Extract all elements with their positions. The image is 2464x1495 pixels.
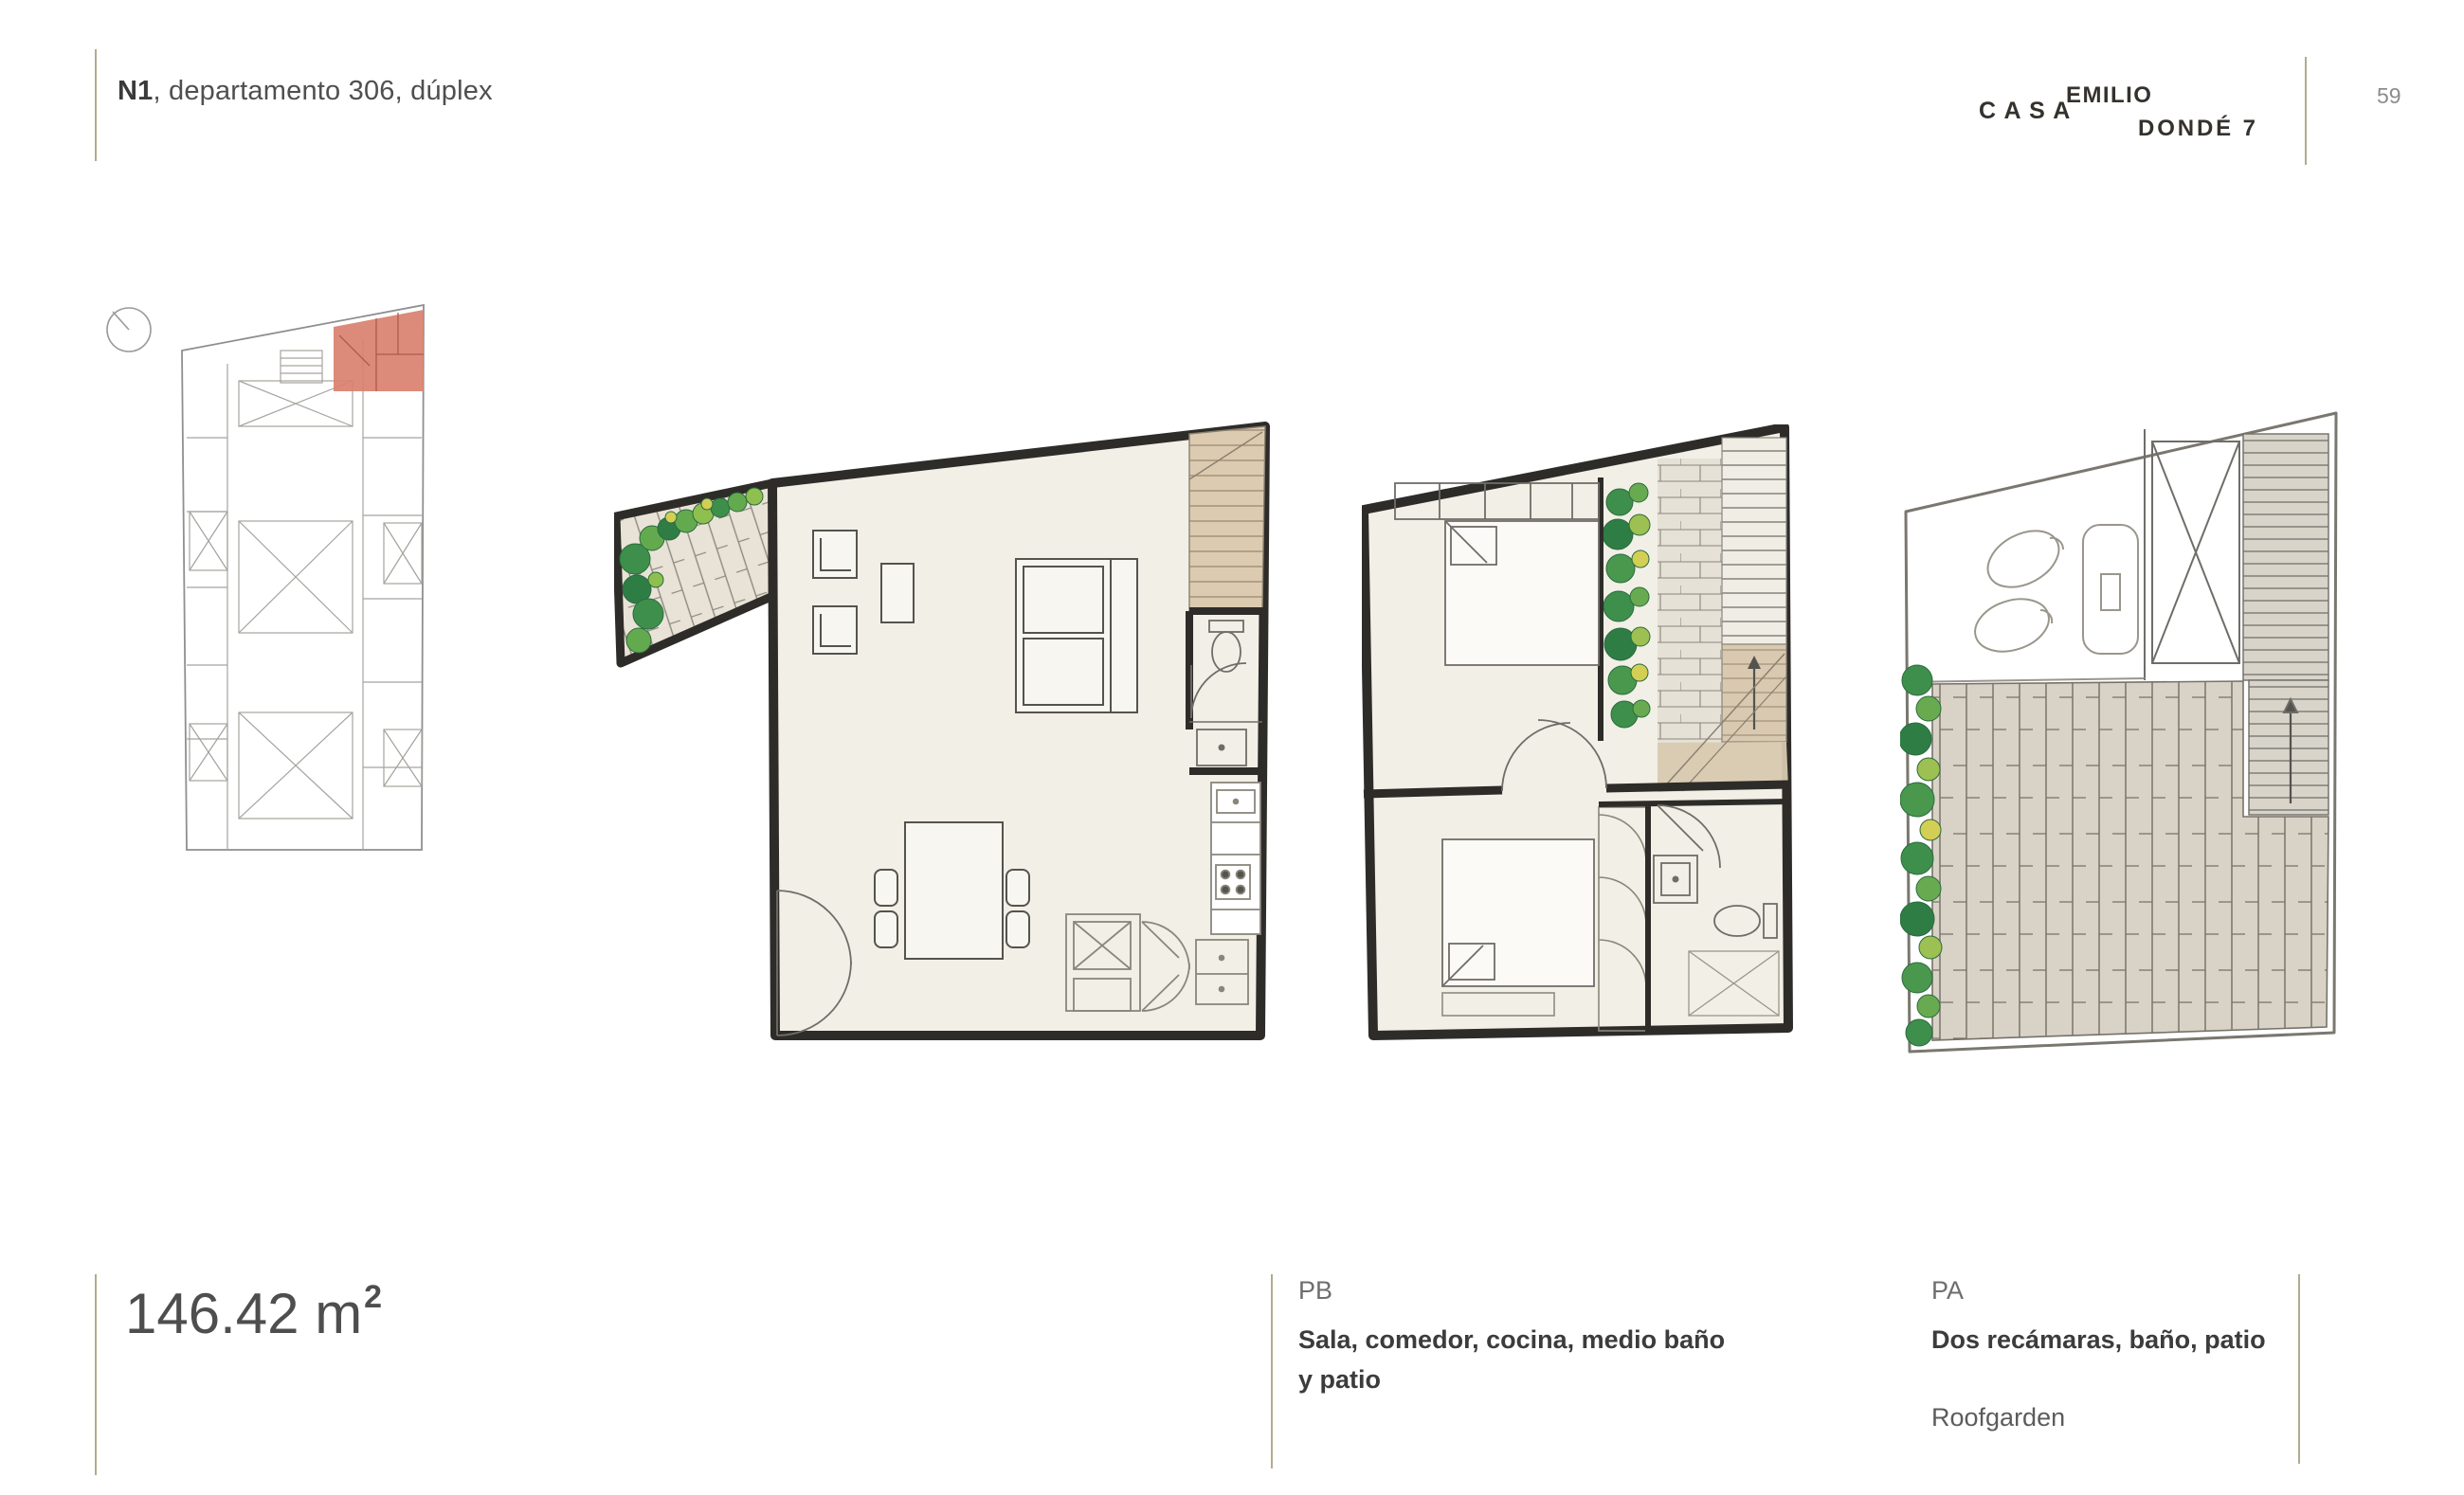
floor-plan-roofgarden bbox=[1900, 405, 2341, 1059]
unit-level-label: N1 bbox=[118, 76, 153, 106]
pa-caption: PA Dos recámaras, baño, patio Roofgarden bbox=[1931, 1271, 2282, 1438]
roofgarden-label: Roofgarden bbox=[1931, 1398, 2282, 1438]
brand-emilio: EMILIO bbox=[2066, 82, 2152, 109]
pb-description: Sala, comedor, cocina, medio bañoy patio bbox=[1298, 1321, 1829, 1400]
unit-area: 146.42 m2 bbox=[125, 1281, 380, 1346]
header-left-rule bbox=[95, 49, 97, 161]
chair bbox=[1006, 870, 1029, 906]
sofa bbox=[1016, 559, 1137, 712]
floor-plan-pa bbox=[1362, 424, 1801, 1042]
bed bbox=[1445, 521, 1599, 665]
page-title: N1, departamento 306, dúplex bbox=[118, 76, 493, 107]
area-unit: m bbox=[315, 1282, 362, 1345]
header-right-rule bbox=[2305, 57, 2307, 165]
pa-patio-tiles bbox=[1658, 459, 1722, 743]
area-exponent: 2 bbox=[364, 1279, 382, 1315]
pa-label: PA bbox=[1931, 1271, 2282, 1311]
chair bbox=[875, 911, 897, 947]
area-value: 146.42 bbox=[125, 1282, 299, 1345]
pb-patio bbox=[616, 483, 775, 663]
brand-donde: DONDÉ 7 bbox=[2138, 116, 2258, 142]
pb-caption: PB Sala, comedor, cocina, medio bañoy pa… bbox=[1298, 1271, 1829, 1400]
building-footprint bbox=[182, 305, 424, 850]
brand-casa: CASA bbox=[1979, 98, 2078, 125]
chair bbox=[1006, 911, 1029, 947]
unit-description-label: , departamento 306, dúplex bbox=[153, 76, 492, 106]
page-number: 59 bbox=[2377, 83, 2401, 109]
dining-table bbox=[905, 822, 1003, 959]
side-table bbox=[881, 564, 914, 622]
planter-table bbox=[2083, 525, 2138, 654]
chair bbox=[875, 870, 897, 906]
key-site-plan bbox=[95, 296, 436, 856]
pa-description: Dos recámaras, baño, patio bbox=[1931, 1321, 2282, 1360]
north-compass-icon bbox=[107, 308, 151, 351]
pb-caption-rule bbox=[1271, 1274, 1273, 1468]
brochure-page: N1, departamento 306, dúplex CASA EMILIO… bbox=[0, 0, 2464, 1495]
area-rule bbox=[95, 1274, 97, 1475]
pa-caption-rule bbox=[2298, 1274, 2300, 1464]
pb-label: PB bbox=[1298, 1271, 1829, 1311]
floor-plan-pb bbox=[614, 417, 1277, 1042]
